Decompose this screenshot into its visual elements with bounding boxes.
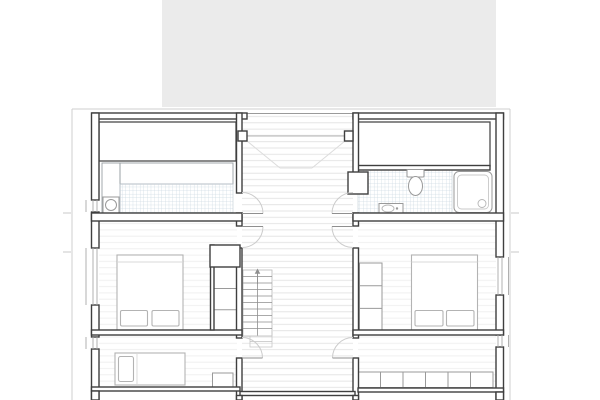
pillow (119, 357, 134, 382)
pillow (152, 311, 179, 327)
toilet-icon (409, 177, 423, 196)
shower-drain (478, 200, 486, 208)
sauna-heater-icon (106, 200, 117, 211)
wall-stub-right (345, 131, 354, 141)
pillow (121, 311, 148, 327)
pillow (415, 311, 443, 327)
sauna-tiled-floor (120, 184, 233, 213)
wardrobe-right (360, 263, 383, 331)
window-bedroom-left (86, 248, 97, 305)
bedroom-right (360, 255, 478, 331)
wardrobe-left (214, 267, 237, 331)
duct-shaft-bathroom (348, 172, 368, 194)
hallway-floor (242, 115, 353, 392)
washbasin-tap (396, 207, 398, 209)
window-sauna (86, 200, 97, 212)
window-bedroom-right (498, 257, 509, 295)
window-room-bottom-left (86, 337, 97, 349)
floor-plan-sheet (0, 0, 600, 400)
bathroom (358, 122, 492, 214)
sauna-storage-band (99, 122, 236, 161)
floor-plan-drawing (0, 0, 600, 400)
pillow (447, 311, 475, 327)
nightstand (213, 373, 234, 387)
room-bottom-right (358, 372, 493, 388)
duct-shaft-left (210, 245, 240, 267)
window-room-bottom-right (498, 335, 509, 347)
washbasin-bowl (382, 205, 394, 212)
sauna-bench (120, 163, 233, 184)
sauna-room (99, 122, 236, 213)
toilet-tank (407, 170, 424, 178)
bathroom-storage-band (358, 122, 490, 166)
wall-stub-left (238, 131, 247, 141)
upper-volume-block (162, 0, 496, 107)
shower-tray (454, 172, 492, 213)
bathroom-tiled-floor (358, 170, 452, 213)
staircase (243, 268, 274, 347)
